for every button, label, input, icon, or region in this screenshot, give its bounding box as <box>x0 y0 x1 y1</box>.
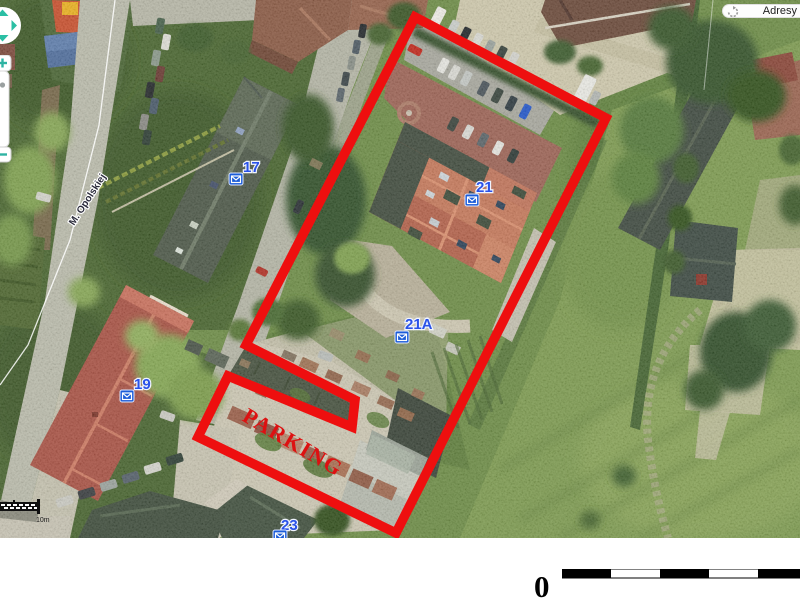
svg-text:21: 21 <box>476 179 493 196</box>
svg-text:10m: 10m <box>36 517 50 524</box>
svg-text:21A: 21A <box>405 316 433 333</box>
svg-text:19: 19 <box>134 376 151 393</box>
svg-text:17: 17 <box>243 159 260 176</box>
